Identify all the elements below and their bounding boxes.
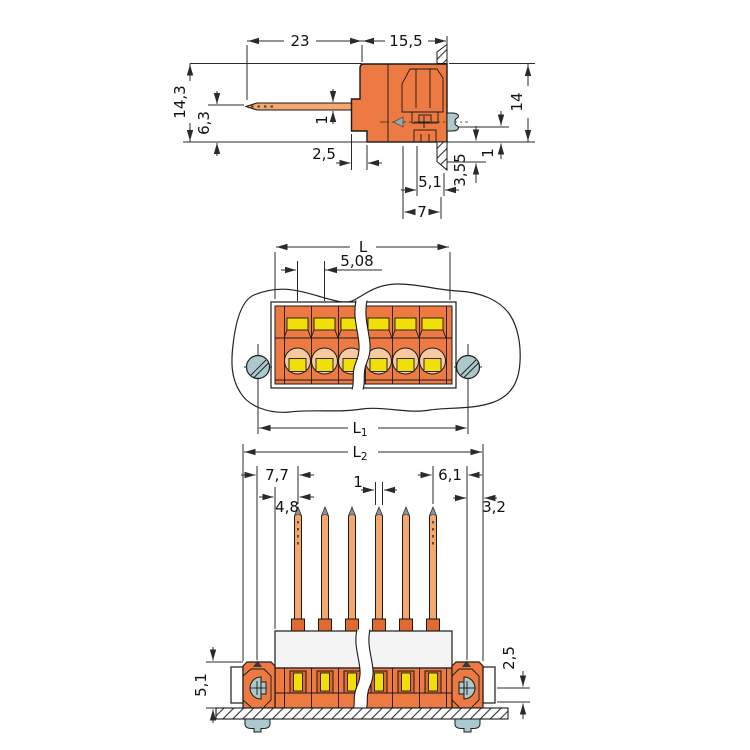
dim-label-14-3: 14,3 (171, 85, 189, 118)
technical-drawing: 23 15,5 14,3 6,3 (0, 0, 750, 750)
dim-label-15-5: 15,5 (389, 32, 422, 50)
dim-23: 23 (247, 32, 362, 50)
dim-label-pin-1: 1 (353, 473, 363, 491)
pin-base (319, 619, 332, 632)
front-left-screw (244, 344, 272, 434)
drawing-canvas: 23 15,5 14,3 6,3 (0, 0, 750, 750)
dim-14-3: 14,3 (171, 64, 190, 143)
dim-label-1-right: 1 (479, 148, 497, 158)
dim-pitch-5-08: 5,08 (281, 252, 382, 301)
dim-L1: L1 (259, 419, 467, 439)
dim-label-6-3: 6,3 (195, 111, 213, 135)
pin (403, 508, 410, 631)
dim-label-5-1-flange: 5,1 (192, 673, 210, 697)
dim-label-7-7: 7,7 (265, 466, 289, 484)
dim-7-7: 7,7 (241, 466, 314, 484)
side-solder-pin (246, 103, 358, 110)
pin (349, 508, 356, 631)
dim-label-3-2: 3,2 (482, 498, 506, 516)
front-connector-body (271, 301, 456, 390)
panel-section-lower (437, 142, 447, 170)
dim-label-23: 23 (290, 32, 309, 50)
dim-label-2-5-screw: 2,5 (500, 646, 518, 670)
dim-label-7: 7 (417, 203, 427, 221)
dim-label-6-1: 6,1 (438, 466, 462, 484)
dim-label-L1: L1 (352, 419, 367, 439)
bottom-housing (275, 630, 452, 710)
dim-label-3-55: 3,55 (451, 153, 469, 186)
dim-label-14: 14 (508, 92, 526, 111)
dim-label-2-5: 2,5 (312, 145, 336, 163)
pin (376, 508, 383, 631)
pin-base (292, 619, 305, 632)
pin (322, 508, 329, 631)
side-view: 23 15,5 14,3 6,3 (171, 32, 535, 221)
right-flange (452, 661, 495, 709)
pin-base (427, 619, 440, 632)
pin-base (373, 619, 386, 632)
dim-6-1: 6,1 (418, 466, 482, 484)
solder-pins (292, 508, 440, 633)
dim-pin-width-1: 1 (353, 473, 397, 505)
pin-base (400, 619, 413, 632)
panel-section-upper (437, 45, 447, 64)
dim-label-4-8: 4,8 (275, 498, 299, 516)
dim-14: 14 (508, 64, 528, 142)
pcb-board (216, 708, 508, 719)
dim-label-L2: L2 (352, 443, 367, 463)
dim-label-pin-1: 1 (313, 115, 331, 125)
dim-label-5-1: 5,1 (418, 173, 442, 191)
pin (295, 508, 302, 631)
dim-15-5: 15,5 (362, 32, 446, 50)
screw-head (245, 719, 270, 732)
dim-1-right: 1 (458, 111, 509, 159)
dim-6-3: 6,3 (195, 91, 244, 156)
dim-4-8: 4,8 (259, 487, 314, 629)
screw-head (455, 719, 480, 732)
left-flange (231, 661, 275, 709)
dim-label-5-08: 5,08 (340, 252, 373, 270)
front-right-screw (454, 344, 482, 434)
side-connector-body (352, 64, 469, 142)
dim-3-2: 3,2 (453, 498, 506, 516)
pin (430, 508, 437, 631)
